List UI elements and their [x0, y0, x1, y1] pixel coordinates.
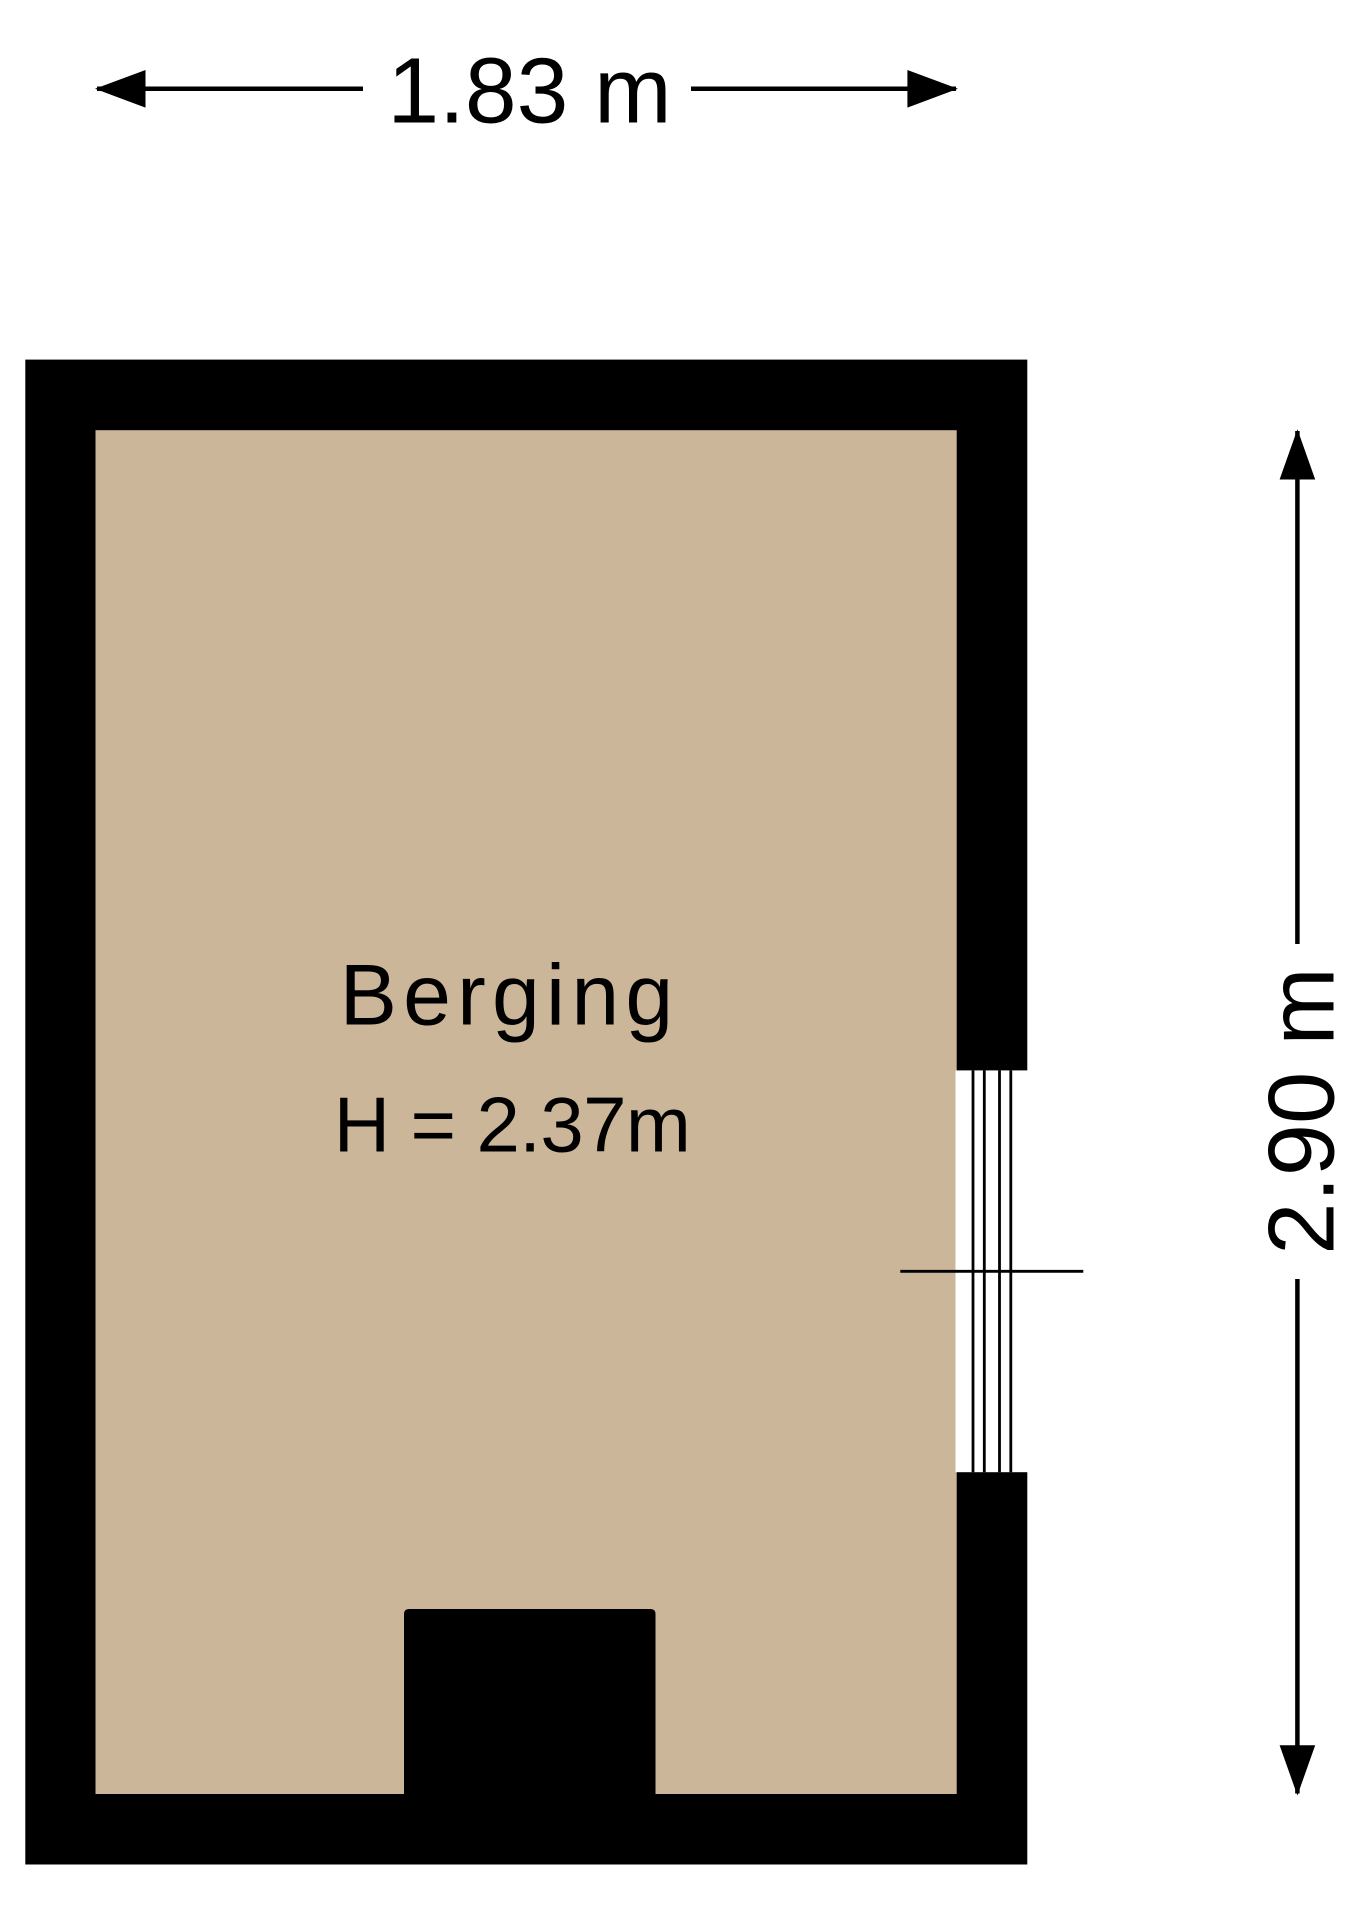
svg-text:1.83 m: 1.83 m [387, 39, 671, 143]
svg-text:Berging: Berging [340, 948, 680, 1044]
svg-text:2.90 m: 2.90 m [1248, 967, 1353, 1254]
svg-text:H = 2.37m: H = 2.37m [334, 1081, 691, 1169]
